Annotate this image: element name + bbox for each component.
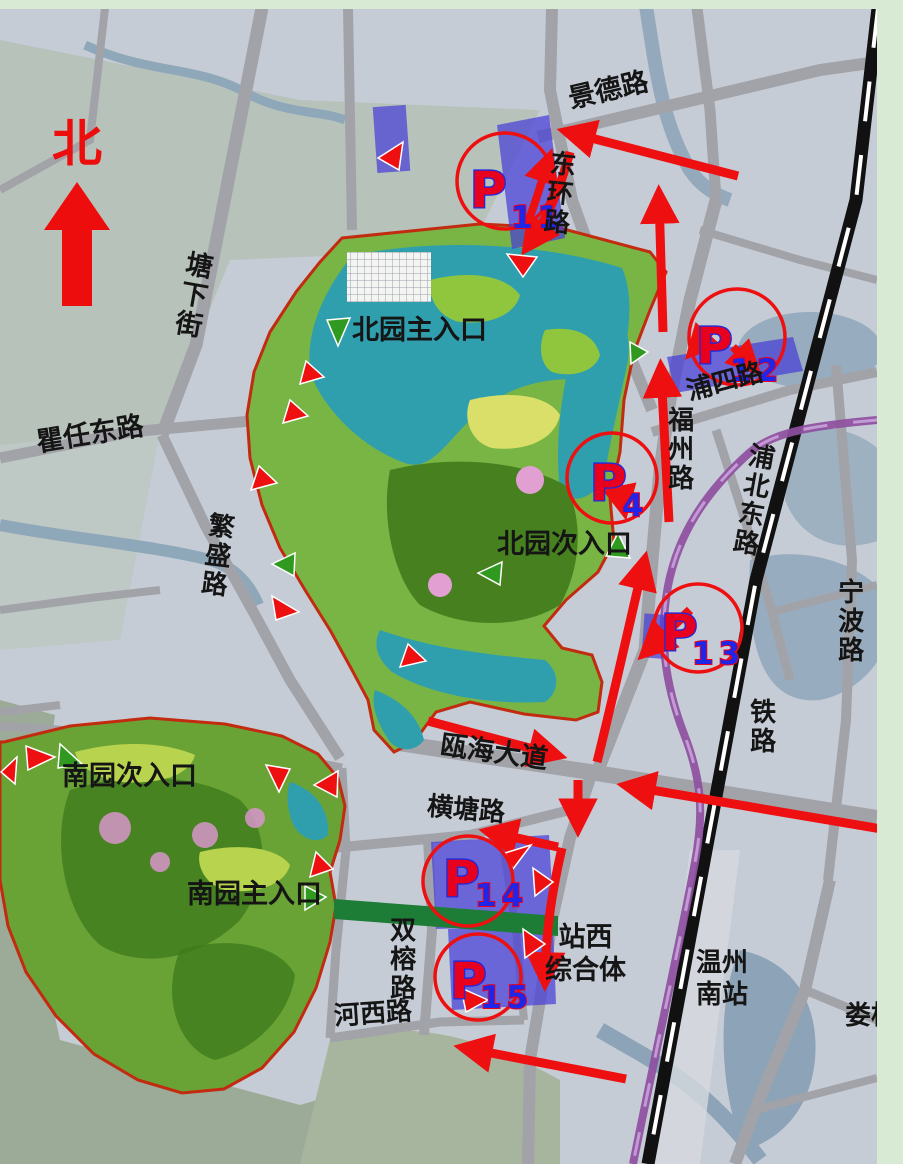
station-west-line2: 综合体 [545, 955, 626, 988]
frame-top [0, 0, 903, 9]
planning-map: P 11 P 12 P 4 P 13 P 14 P 15 北 [0, 0, 903, 1164]
p14-num: 14 [475, 878, 528, 914]
wenzhou-south-line1: 温州 [696, 948, 748, 980]
p15-num: 15 [480, 980, 533, 1016]
entrance-label-north-main: 北园主入口 [352, 316, 487, 346]
frame-right [877, 0, 903, 1164]
north-arrow-head [44, 182, 110, 230]
entrance-label-south-main: 南园主入口 [187, 880, 322, 910]
entrance-label-south-secondary: 南园次入口 [62, 762, 197, 792]
north-compass-arrow [44, 182, 110, 308]
north-arrow-stem [62, 230, 92, 306]
p11-letter: P [470, 161, 507, 219]
p4-num: 4 [622, 488, 649, 524]
road-label-fuzhou: 福州路 [664, 406, 693, 493]
road-label-hengtang: 横塘路 [426, 793, 506, 828]
wenzhou-south-line2: 南站 [696, 980, 748, 1012]
station-west-line1: 站西 [545, 922, 626, 955]
entrance-label-north-secondary: 北园次入口 [497, 530, 632, 560]
p13-num: 13 [692, 636, 745, 672]
road-label-hexi: 河西路 [333, 997, 413, 1031]
map-base: P 11 P 12 P 4 P 13 P 14 P 15 [0, 0, 903, 1164]
road-label-ningbo: 宁波路 [834, 578, 863, 665]
road-label-shuangrong: 双榕路 [386, 916, 415, 1003]
place-label-wenzhou-south-station: 温州 南站 [696, 948, 748, 1011]
north-compass-label: 北 [52, 104, 102, 176]
place-label-station-west-complex: 站西 综合体 [545, 922, 626, 988]
flow-arrow-fuzhou-north-1 [659, 196, 663, 332]
road-label-tielu: 铁路 [746, 698, 775, 756]
